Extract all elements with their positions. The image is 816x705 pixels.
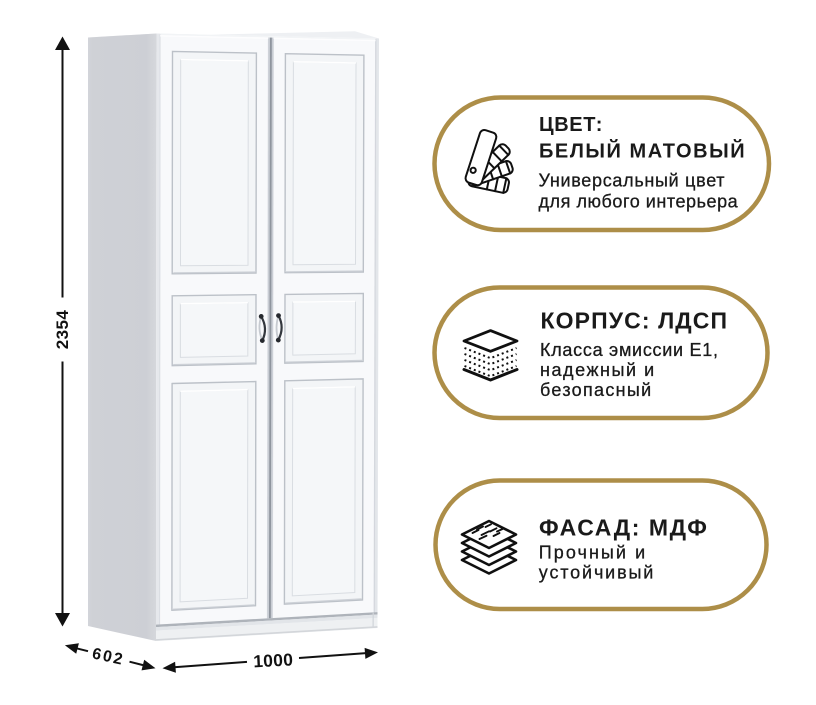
svg-text:безопасный: безопасный: [540, 380, 652, 400]
svg-text:ФАСАД: МДФ: ФАСАД: МДФ: [539, 514, 708, 540]
svg-text:для любого интерьера: для любого интерьера: [539, 192, 739, 212]
svg-text:Прочный и: Прочный и: [539, 543, 647, 563]
svg-text:Класса эмиссии Е1,: Класса эмиссии Е1,: [540, 340, 719, 360]
svg-text:БЕЛЫЙ МАТОВЫЙ: БЕЛЫЙ МАТОВЫЙ: [539, 138, 746, 162]
svg-text:КОРПУС: ЛДСП: КОРПУС: ЛДСП: [541, 308, 729, 334]
svg-text:ЦВЕТ:: ЦВЕТ:: [539, 114, 603, 136]
svg-text:Универсальный цвет: Универсальный цвет: [539, 171, 726, 191]
svg-text:602: 602: [91, 645, 126, 669]
svg-text:2354: 2354: [53, 310, 72, 350]
svg-text:надежный и: надежный и: [540, 360, 656, 380]
svg-text:1000: 1000: [253, 649, 294, 671]
svg-text:устойчивый: устойчивый: [539, 562, 655, 582]
